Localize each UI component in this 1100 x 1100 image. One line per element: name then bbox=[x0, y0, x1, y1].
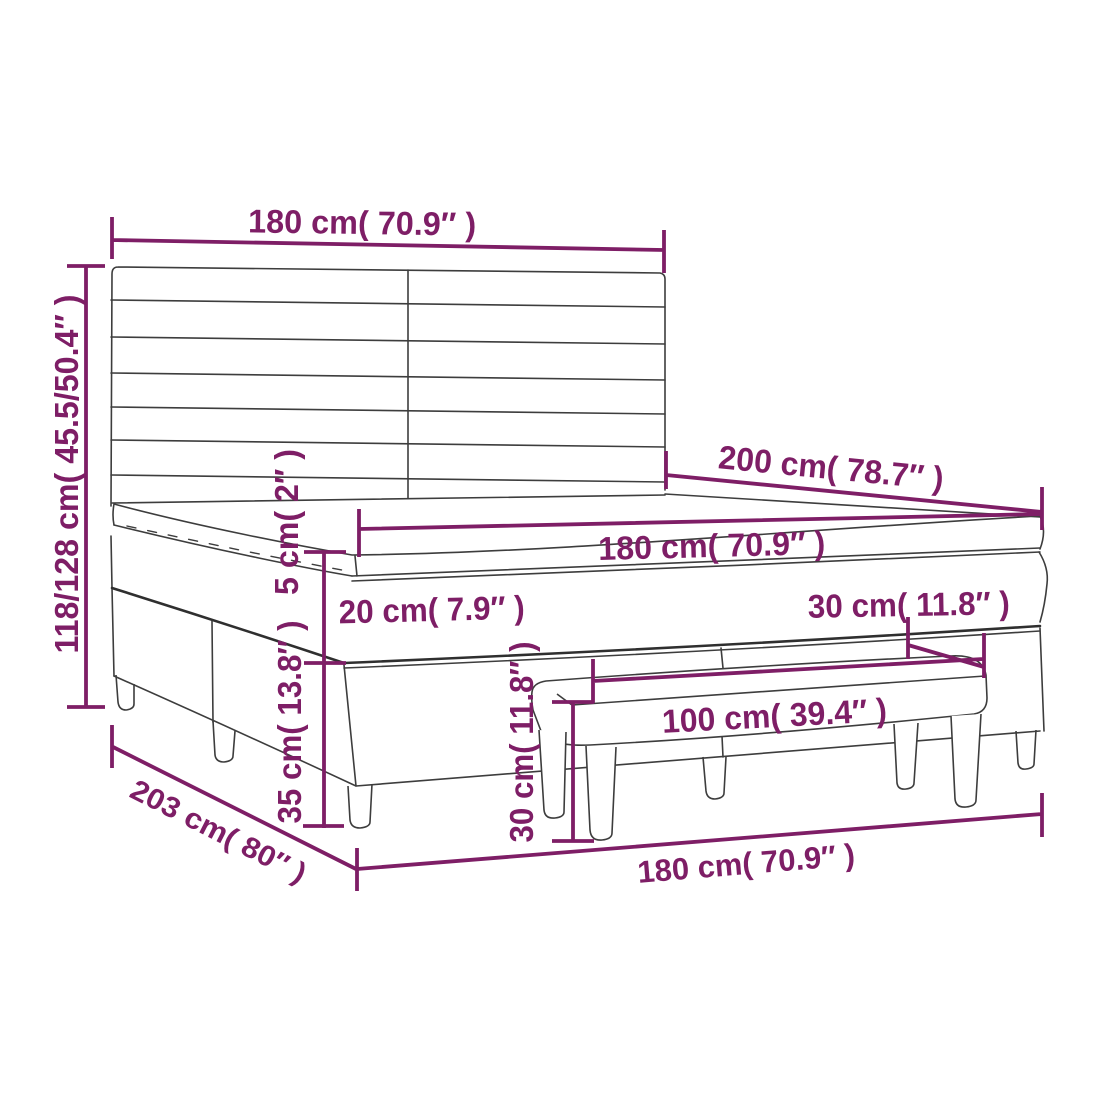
svg-text:5 cm( 2″ ): 5 cm( 2″ ) bbox=[268, 449, 305, 595]
svg-text:20 cm( 7.9″ ): 20 cm( 7.9″ ) bbox=[338, 589, 525, 631]
svg-text:180 cm( 70.9″ ): 180 cm( 70.9″ ) bbox=[598, 524, 826, 567]
svg-text:30 cm( 11.8″ ): 30 cm( 11.8″ ) bbox=[503, 642, 540, 843]
svg-text:118/128 cm( 45.5/50.4″ ): 118/128 cm( 45.5/50.4″ ) bbox=[48, 295, 85, 654]
svg-text:35 cm( 13.8″ ): 35 cm( 13.8″ ) bbox=[271, 621, 308, 824]
svg-text:180 cm( 70.9″ ): 180 cm( 70.9″ ) bbox=[248, 202, 476, 242]
svg-text:30 cm( 11.8″ ): 30 cm( 11.8″ ) bbox=[807, 584, 1010, 625]
